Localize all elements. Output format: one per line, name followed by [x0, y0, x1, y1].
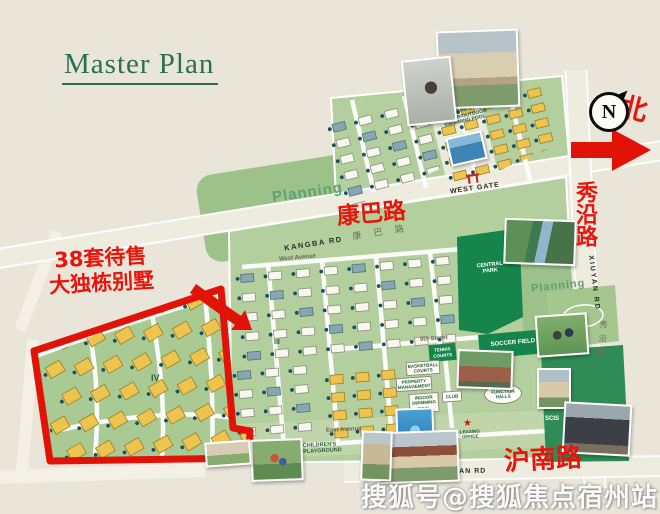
- leasing-office-star-icon: ★: [463, 418, 472, 429]
- childrens-playground-label: CHILDREN'S PLAYGROUND: [303, 441, 348, 456]
- basketball-courts-label: BASKETBALL COURTS: [406, 360, 441, 376]
- compass: N: [589, 92, 629, 132]
- photo-villa-small-image: [362, 433, 391, 480]
- photo-townhomes-image: [206, 442, 249, 466]
- leasing-office-label: LEASING OFFICE: [455, 428, 485, 440]
- property-management-label: PROPERTY MANAGEMENT: [396, 376, 433, 392]
- photo-soccer-image: [537, 314, 588, 355]
- hunan-road-name-red: 沪南路: [503, 444, 582, 477]
- photo-villa-small: [360, 430, 393, 481]
- phase-iv-label: IV: [151, 373, 160, 383]
- page-title: Master Plan: [62, 48, 218, 85]
- photo-swimming-pool-image: [448, 133, 486, 165]
- master-plan-page: Master Plan Planning Planning SKATE PARK…: [0, 0, 660, 514]
- photo-skater-image: [403, 58, 455, 124]
- photo-tennis-image: [458, 351, 511, 388]
- xiuyan-road-name-red: 秀沿路: [573, 181, 595, 247]
- compass-letter: N: [602, 101, 616, 124]
- sale-annotation: 38套待售 大独栋别墅: [25, 242, 177, 300]
- photo-central-park: [503, 218, 577, 266]
- photo-tennis: [456, 349, 513, 390]
- photo-playground-image: [252, 440, 301, 480]
- watermark: 搜狐号@搜狐焦点宿州站: [361, 477, 658, 514]
- photo-townhomes: [204, 439, 252, 467]
- photo-playground: [250, 438, 303, 482]
- phase-iii-label: III: [274, 339, 280, 347]
- photo-central-park-image: [505, 220, 574, 264]
- photo-soccer: [535, 312, 590, 358]
- photo-skater: [401, 56, 458, 127]
- scis-label: SCIS: [545, 416, 559, 423]
- xiuyan-road-characters: 秀沿路: [596, 320, 608, 363]
- club-label: CLUB: [442, 390, 463, 402]
